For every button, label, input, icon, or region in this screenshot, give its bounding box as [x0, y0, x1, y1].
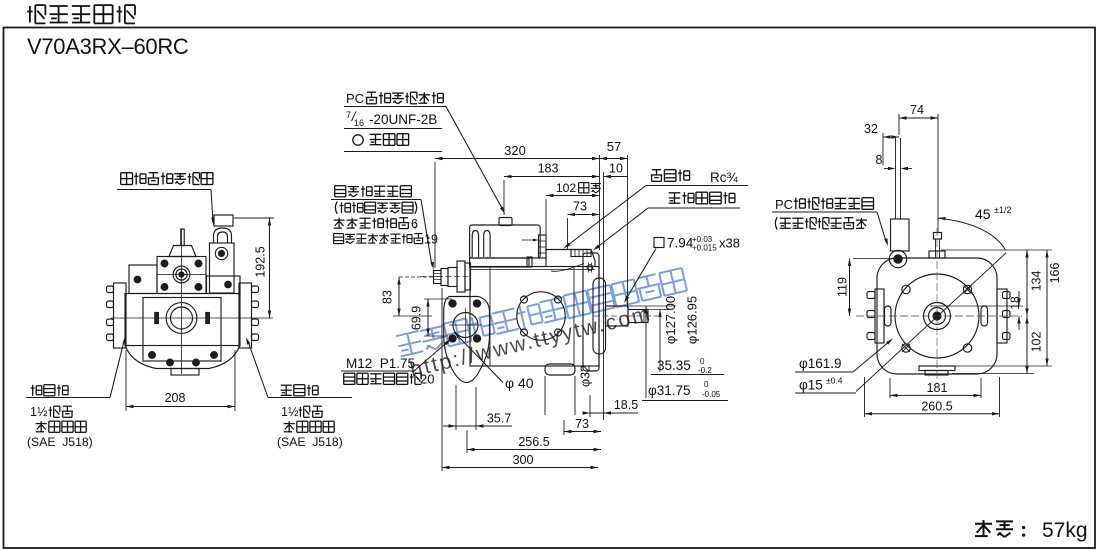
svg-text:20: 20: [420, 372, 434, 387]
svg-text:134: 134: [1029, 271, 1043, 292]
svg-text:φ127.00: φ127.00: [663, 296, 678, 344]
svg-text:119: 119: [835, 277, 849, 297]
svg-text:1½: 1½: [30, 405, 48, 419]
svg-text:V70A3RX–60RC: V70A3RX–60RC: [27, 34, 189, 59]
svg-text:φ 40: φ 40: [505, 375, 534, 391]
svg-text:260.5: 260.5: [921, 400, 952, 414]
svg-text:-20UNF-2B: -20UNF-2B: [369, 112, 437, 127]
svg-text:10: 10: [609, 162, 623, 176]
svg-text:208: 208: [165, 391, 186, 405]
svg-text:0: 0: [704, 380, 709, 389]
svg-text:73: 73: [575, 417, 589, 431]
svg-text:19: 19: [424, 233, 438, 247]
svg-text:±1/2: ±1/2: [994, 205, 1011, 215]
svg-text:8: 8: [876, 153, 883, 167]
svg-text:+0.015: +0.015: [692, 244, 717, 253]
svg-text:300: 300: [513, 453, 534, 467]
svg-text:192.5: 192.5: [253, 246, 267, 277]
svg-text:256.5: 256.5: [518, 435, 549, 449]
svg-text:φ15: φ15: [799, 378, 823, 393]
svg-text:57kg: 57kg: [1042, 519, 1088, 542]
svg-text:74: 74: [910, 103, 924, 117]
svg-text:PC: PC: [775, 197, 793, 212]
svg-text:181: 181: [927, 381, 948, 395]
svg-text:-0.2: -0.2: [698, 366, 712, 375]
svg-text:M12 P1.75: M12 P1.75: [346, 356, 415, 371]
svg-text:73: 73: [573, 200, 587, 214]
svg-text:102: 102: [556, 181, 577, 195]
svg-text:φ161.9: φ161.9: [799, 356, 842, 371]
svg-text:-0.05: -0.05: [702, 390, 721, 399]
svg-text:φ31.75: φ31.75: [648, 383, 691, 398]
svg-text:320: 320: [504, 143, 526, 158]
svg-text:(SAE J518): (SAE J518): [27, 435, 93, 449]
svg-text:183: 183: [538, 162, 559, 176]
svg-text:18: 18: [1008, 296, 1022, 310]
svg-text:166: 166: [1048, 263, 1062, 284]
svg-text:83: 83: [380, 290, 394, 304]
svg-text:16: 16: [354, 118, 364, 128]
svg-text:102: 102: [1029, 332, 1043, 353]
svg-text:φ126.95: φ126.95: [684, 296, 699, 344]
svg-text:φ32: φ32: [578, 365, 592, 387]
svg-text:35.7: 35.7: [487, 412, 511, 426]
svg-text:32: 32: [864, 122, 878, 136]
svg-text:±0.4: ±0.4: [826, 376, 843, 386]
svg-text:6: 6: [411, 217, 418, 231]
svg-text:57: 57: [607, 139, 621, 154]
svg-text:69.9: 69.9: [409, 306, 423, 330]
svg-text:Rc¾: Rc¾: [710, 170, 738, 185]
svg-text:0: 0: [700, 357, 705, 366]
svg-text:1½: 1½: [281, 405, 299, 419]
svg-text:x38: x38: [719, 236, 740, 251]
svg-text:7: 7: [346, 110, 351, 120]
svg-text:35.35: 35.35: [657, 358, 691, 373]
svg-text:7.94: 7.94: [667, 236, 694, 251]
svg-text:45: 45: [975, 206, 991, 222]
svg-text:18.5: 18.5: [614, 398, 638, 412]
svg-text:PC: PC: [346, 91, 364, 106]
svg-text:(SAE J518): (SAE J518): [277, 435, 343, 449]
